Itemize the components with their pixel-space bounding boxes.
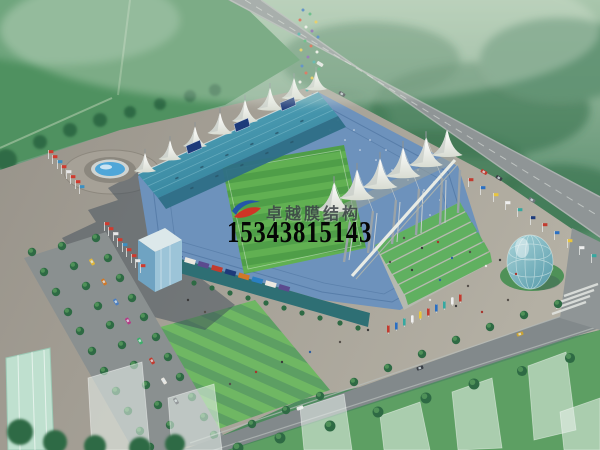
fountain xyxy=(84,157,136,183)
rendering-scene xyxy=(0,0,600,450)
entrance-block xyxy=(138,228,182,292)
stadium-aerial-rendering: 卓越膜结构 15343815143 xyxy=(0,0,600,450)
